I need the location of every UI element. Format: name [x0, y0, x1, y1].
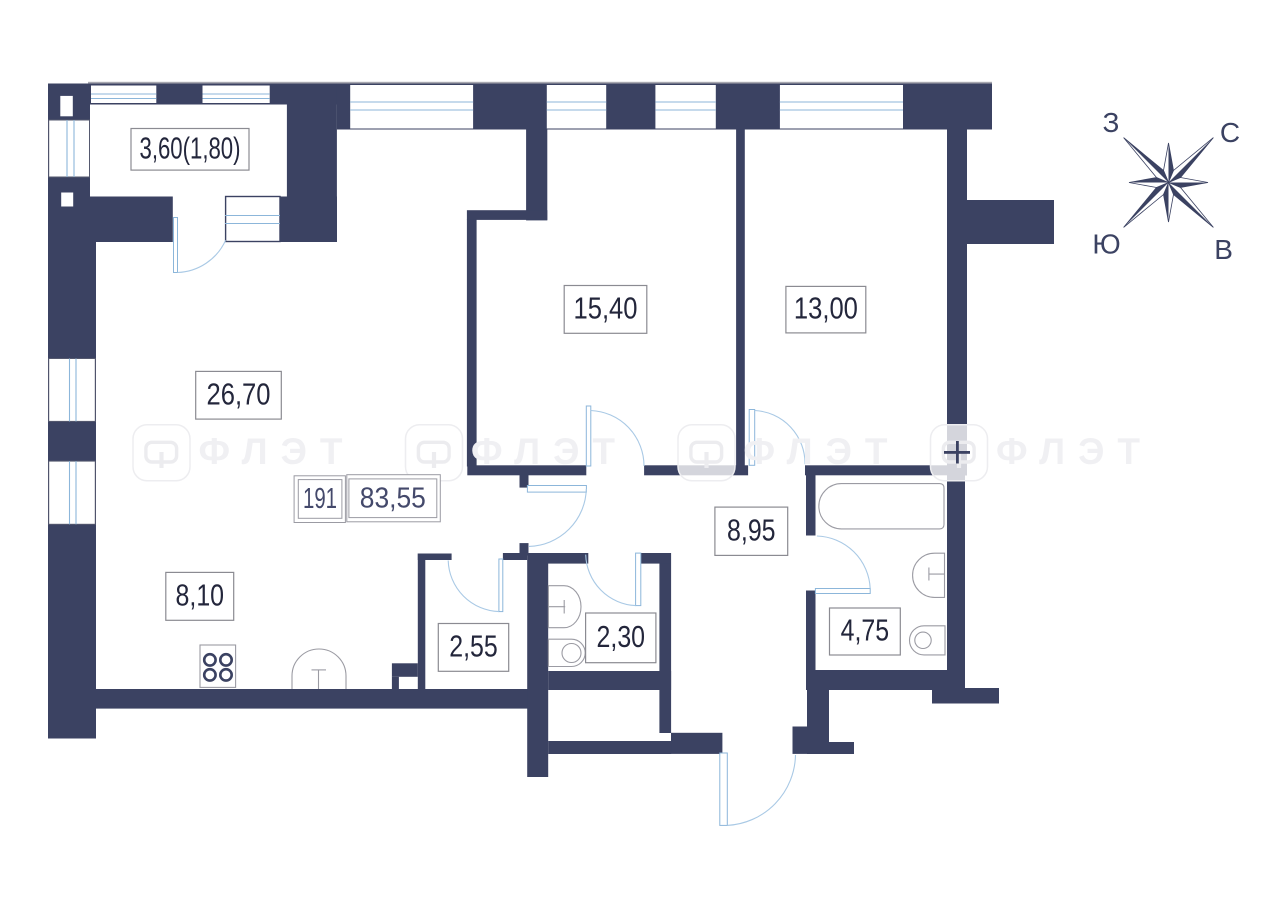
svg-text:З: З [1103, 107, 1120, 138]
svg-text:2,30: 2,30 [597, 620, 646, 654]
svg-text:ФЛЭТ: ФЛЭТ [743, 431, 900, 472]
svg-text:ФЛЭТ: ФЛЭТ [471, 431, 628, 472]
svg-text:Ю: Ю [1092, 229, 1120, 260]
svg-text:3,60(1,80): 3,60(1,80) [140, 131, 241, 165]
svg-text:ФЛЭТ: ФЛЭТ [996, 431, 1153, 472]
svg-text:26,70: 26,70 [207, 377, 271, 411]
svg-text:83,55: 83,55 [360, 482, 426, 514]
svg-text:С: С [1220, 117, 1240, 148]
svg-text:4,75: 4,75 [841, 614, 890, 648]
svg-text:8,10: 8,10 [176, 578, 225, 612]
svg-text:В: В [1214, 234, 1233, 265]
svg-text:13,00: 13,00 [794, 292, 858, 326]
svg-text:8,95: 8,95 [727, 513, 776, 547]
svg-text:15,40: 15,40 [574, 291, 638, 325]
svg-text:191: 191 [303, 483, 337, 515]
svg-text:2,55: 2,55 [449, 629, 498, 663]
svg-text:ФЛЭТ: ФЛЭТ [198, 431, 355, 472]
